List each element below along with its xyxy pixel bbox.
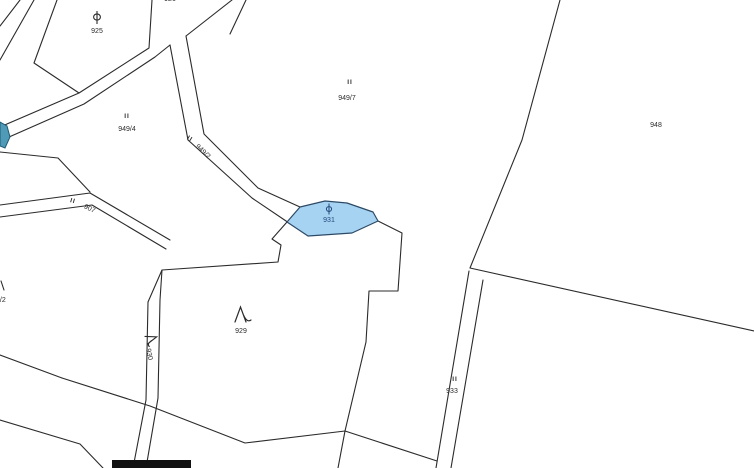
boundary-line: [338, 431, 345, 468]
parcel-948-west-boundary: [470, 0, 560, 268]
grassland-symbol: II: [124, 113, 130, 121]
parcel-label-949-4: 949/4: [118, 126, 136, 134]
central-parcel-east-boundary: [345, 221, 402, 431]
boundary-line: [0, 0, 20, 26]
boundary-line: [186, 0, 232, 36]
strip-949-2-left: [170, 45, 289, 223]
boundary-line: [470, 268, 754, 331]
grassland-symbol: II: [452, 376, 458, 384]
central-parcel-west-boundary: [148, 222, 287, 302]
tree-icon: [235, 307, 251, 322]
parcel-label-933: 933: [446, 388, 458, 396]
boundary-line: [0, 420, 103, 468]
strip-907-lower: [0, 205, 166, 249]
parcel-label-949-7: 949/7: [338, 95, 356, 103]
strip-907-upper: [0, 193, 170, 240]
path-band-upper: [0, 93, 79, 127]
cadastral-map-canvas[interactable]: 925 926 II 949/4 II 949/2 II 949/7 948 I…: [0, 0, 754, 468]
parcel-label-9-2-clipped: 9/2: [0, 297, 6, 305]
grassland-symbol: II: [347, 79, 353, 87]
boundary-line: [230, 0, 246, 34]
central-parcel-south-boundary: [62, 378, 437, 461]
parcel-label-926-clipped: 926: [164, 0, 176, 4]
parcel-925-boundary: [34, 0, 152, 93]
parcel-boundaries-layer: [0, 0, 754, 468]
path-band-lower: [0, 45, 170, 141]
boundary-line: [0, 152, 90, 192]
strip-949-2-right: [186, 36, 300, 207]
filled-structure-bar: [112, 460, 191, 468]
edge-parcel-highlighted[interactable]: [0, 122, 10, 148]
parcel-label-925: 925: [91, 28, 103, 36]
parcel-label-929: 929: [235, 328, 247, 336]
edge-symbol-tick: [1, 281, 4, 290]
strip-930-right: [146, 270, 162, 468]
orchard-icon: [94, 11, 101, 24]
boundary-line: [0, 355, 62, 378]
strip-933-right: [451, 280, 483, 468]
strip-930-left: [133, 302, 148, 468]
parcel-label-948: 948: [650, 122, 662, 130]
parcel-label-931: 931: [323, 217, 335, 225]
strip-933-left: [436, 271, 469, 468]
boundary-line: [0, 0, 34, 60]
